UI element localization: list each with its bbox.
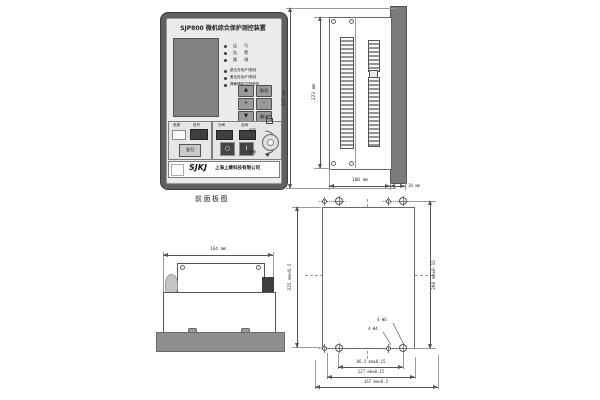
dim-cutout-height-label: 225 mm+0.5 — [289, 263, 294, 290]
dim-extension-line — [438, 355, 439, 389]
screw-icon — [331, 19, 336, 24]
key-minus-button: − — [256, 98, 272, 110]
dim-extension-line — [286, 8, 396, 9]
mounting-hole-pair — [386, 197, 407, 206]
led-indicator — [224, 70, 227, 73]
dim-case-height-label: 223 mm — [313, 84, 318, 100]
dim-hole-span-outer — [327, 377, 415, 378]
led-label: 备自充电/PT断线 — [230, 76, 256, 80]
key-plus-button: + — [238, 98, 254, 110]
dim-case-height — [320, 17, 321, 168]
dim-hole-span-height-label: 208 mm±0.15 — [433, 260, 438, 290]
close-label: 合闸 — [241, 124, 248, 128]
dim-panel-thickness-label: 10 mm — [408, 184, 420, 188]
dim-body-width-label: 164 mm — [210, 248, 226, 253]
latch-clip — [165, 274, 178, 294]
lock-icon-body — [266, 118, 273, 124]
dial-knob — [267, 139, 274, 146]
terminal-strip-upper — [368, 40, 380, 72]
connector-block — [262, 277, 274, 293]
device-title: SJP800 微机综合保护测控装置 — [166, 26, 280, 32]
dim-case-depth — [329, 186, 390, 187]
case-divider-line — [355, 17, 356, 168]
dim-case-depth-label: 100 mm — [352, 179, 368, 184]
led-label: 告 警 — [233, 51, 251, 55]
screw-hole-icon — [399, 197, 407, 205]
dim-extension-line — [403, 353, 404, 369]
dim-overall-height — [290, 8, 291, 188]
dim-hole-span-inner — [338, 367, 403, 368]
dim-extension-line — [286, 188, 396, 189]
dim-hole-span-outer-label: 127 mm±0.15 — [358, 370, 385, 374]
pilot-hole-icon — [322, 346, 327, 351]
dim-overall-height-label: 266 mm — [283, 90, 288, 106]
led-indicator — [224, 77, 227, 80]
screw-hole-icon — [335, 197, 343, 205]
pilot-hole-icon — [386, 199, 391, 204]
off-button: ○ — [220, 142, 235, 156]
brand-logo: SJKJ — [189, 164, 207, 172]
key-up-button: ▲ — [238, 85, 254, 97]
screw-hole-icon — [335, 344, 343, 352]
open-button — [216, 130, 233, 140]
reset-button: 复归 — [179, 144, 201, 157]
dim-hole-span-inner-label: 86.5 mm±0.15 — [357, 360, 386, 364]
led-label: 重合充电/PT断线 — [230, 69, 256, 73]
led-label: 跳 闸 — [233, 58, 251, 62]
panel-base-plate — [156, 332, 285, 352]
mode-selector-dial — [262, 134, 279, 151]
indicator-window — [172, 130, 186, 140]
power-label: 电源 — [173, 124, 180, 128]
screw-icon — [349, 161, 354, 166]
screw-icon — [349, 19, 354, 24]
dim-cutout-width — [315, 387, 438, 388]
case-outline — [329, 17, 392, 170]
mounting-hole-pair — [322, 344, 343, 353]
drawing-canvas: SJP800 微机综合保护测控装置 运 行 告 警 跳 闸 重合充电/PT断线 … — [0, 0, 600, 400]
screw-icon — [331, 161, 336, 166]
terminal-strip-lower — [368, 77, 380, 147]
dim-cutout-height — [297, 207, 298, 347]
key-cancel-button: 取消 — [256, 85, 272, 97]
pilot-hole-icon — [322, 199, 327, 204]
body-block — [163, 292, 276, 334]
screw-icon — [180, 265, 185, 270]
led-label: 运 行 — [233, 44, 251, 48]
mounting-plate-side — [390, 6, 407, 184]
open-label: 分闸 — [218, 124, 225, 128]
signal-label: 信号 — [193, 124, 200, 128]
signal-window — [190, 129, 208, 140]
front-panel-caption: 前面板图 — [195, 196, 229, 203]
dim-extension-line — [415, 357, 416, 379]
terminal-strip-long — [340, 37, 354, 149]
lcd-screen — [173, 38, 219, 117]
company-name: 上海上继科技有限公司 — [215, 167, 260, 172]
dim-body-width — [163, 255, 273, 256]
dim-extension-line — [163, 252, 164, 292]
hole-leader-lines — [365, 316, 410, 350]
led-indicator — [224, 84, 227, 87]
dim-extension-line — [405, 183, 406, 190]
led-indicator — [224, 59, 227, 62]
signal-section: 电源 信号 复归 — [168, 121, 212, 160]
dial-local-label: 就地 — [249, 151, 256, 155]
brand-square — [171, 164, 184, 176]
led-indicator — [224, 45, 227, 48]
rear-block — [177, 263, 265, 294]
dim-cutout-width-label: 167 mm+0.5 — [364, 380, 388, 384]
led-indicator — [224, 52, 227, 55]
screw-icon — [256, 265, 261, 270]
brand-bar: SJKJ 上海上继科技有限公司 — [168, 161, 280, 178]
dial-remote-label: 远方 — [249, 129, 256, 133]
mounting-hole-pair — [322, 197, 343, 206]
dim-panel-thickness — [390, 186, 405, 187]
